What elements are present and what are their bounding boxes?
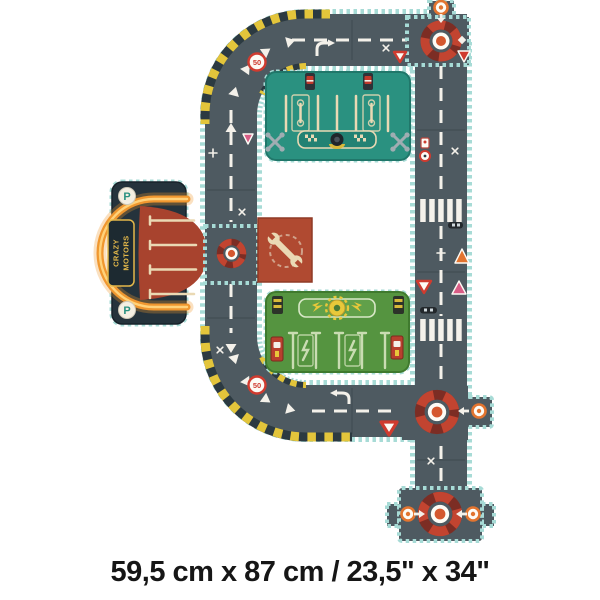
wrench-sign-piece [258, 218, 312, 282]
stub-sign [473, 405, 486, 418]
tiny-car-upper [448, 222, 463, 229]
speed-sign-top: 50 [249, 54, 266, 71]
track-illustration: P P CRAZY MOTORS [0, 0, 600, 556]
finish-strip [298, 131, 376, 149]
roundabout [416, 391, 458, 433]
svg-text:MOTORS: MOTORS [122, 235, 131, 270]
speed-sign-bottom: 50 [249, 377, 266, 394]
end-roundabout-piece [387, 488, 494, 541]
svg-text:CRAZY: CRAZY [112, 239, 121, 267]
sign-left [402, 508, 415, 521]
energy-sign [299, 297, 375, 319]
pump-post-right [363, 73, 373, 90]
charger-left [271, 337, 283, 361]
stub-sign [435, 1, 448, 14]
svg-text:50: 50 [253, 381, 261, 390]
top-right-roundabout-piece [407, 1, 470, 65]
round-sign [420, 151, 430, 161]
parking-sign-bottom: P [119, 302, 136, 319]
product-image: P P CRAZY MOTORS [0, 0, 600, 600]
charging-station [266, 292, 409, 372]
crazy-motors-badge: CRAZY MOTORS [108, 220, 134, 286]
svg-text:P: P [123, 191, 130, 203]
svg-text:50: 50 [253, 58, 261, 67]
charger-right [391, 336, 403, 359]
service-station [264, 72, 410, 160]
pump-post-left [305, 73, 315, 90]
dimensions-caption: 59,5 cm x 87 cm / 23,5" x 34" [0, 556, 600, 589]
sign-right [467, 508, 480, 521]
parking-sign-top: P [119, 188, 136, 205]
entry-roundabout-piece [205, 226, 258, 283]
svg-text:P: P [123, 305, 130, 317]
garage-piece: P P CRAZY MOTORS [100, 182, 207, 324]
barrier-post-right [393, 296, 404, 314]
tiny-car-lower [420, 307, 437, 314]
barrier-post-left [272, 296, 283, 314]
plate-sign [421, 138, 429, 148]
